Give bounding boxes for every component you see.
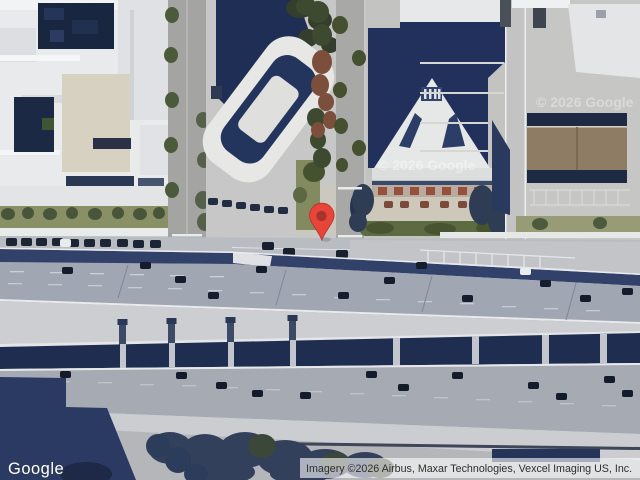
- svg-text:© 2026 Google: © 2026 Google: [378, 157, 476, 173]
- svg-text:Imagery ©2026 Airbus, Maxar Te: Imagery ©2026 Airbus, Maxar Technologies…: [306, 463, 632, 475]
- svg-text:Google: Google: [8, 460, 64, 478]
- svg-text:© 2026 Google: © 2026 Google: [536, 94, 634, 110]
